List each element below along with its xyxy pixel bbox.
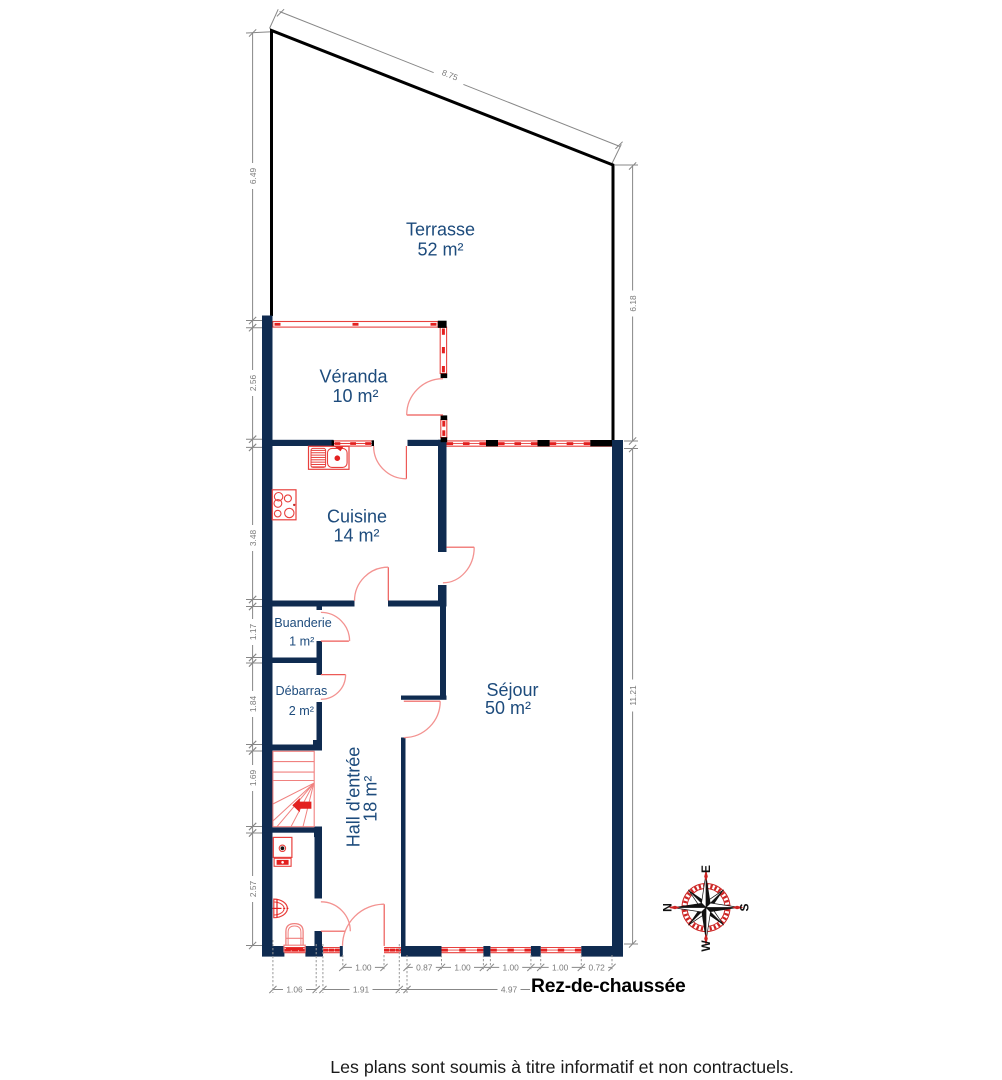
svg-text:1.00: 1.00 xyxy=(454,963,471,973)
svg-text:2.56: 2.56 xyxy=(248,375,258,392)
svg-text:52 m²: 52 m² xyxy=(417,239,463,259)
svg-text:Terrasse: Terrasse xyxy=(406,219,475,239)
svg-text:1.00: 1.00 xyxy=(503,963,520,973)
svg-text:1.69: 1.69 xyxy=(248,770,258,787)
svg-text:Rez-de-chaussée: Rez-de-chaussée xyxy=(531,976,686,997)
svg-text:1.00: 1.00 xyxy=(355,963,372,973)
svg-text:18 m²: 18 m² xyxy=(361,776,381,822)
svg-text:Débarras: Débarras xyxy=(276,684,328,698)
svg-text:6.18: 6.18 xyxy=(628,295,638,312)
svg-text:1.00: 1.00 xyxy=(552,963,569,973)
svg-text:S: S xyxy=(738,903,752,911)
svg-text:Buanderie: Buanderie xyxy=(274,616,331,630)
svg-text:1.91: 1.91 xyxy=(353,985,370,995)
svg-text:11.21: 11.21 xyxy=(628,685,638,706)
svg-text:1.84: 1.84 xyxy=(248,696,258,713)
svg-text:W: W xyxy=(699,940,713,952)
svg-text:Séjour: Séjour xyxy=(486,680,538,700)
svg-text:1.06: 1.06 xyxy=(286,985,303,995)
svg-text:6.49: 6.49 xyxy=(248,168,258,185)
svg-text:4.97: 4.97 xyxy=(501,985,518,995)
svg-text:E: E xyxy=(699,865,713,873)
svg-text:2 m²: 2 m² xyxy=(289,704,314,718)
svg-text:3.48: 3.48 xyxy=(248,530,258,547)
svg-text:N: N xyxy=(661,903,675,912)
svg-text:50 m²: 50 m² xyxy=(485,698,531,718)
svg-text:0.72: 0.72 xyxy=(589,963,606,973)
svg-text:Cuisine: Cuisine xyxy=(327,506,387,526)
svg-text:1 m²: 1 m² xyxy=(289,635,314,649)
svg-text:Les plans sont soumis à titre: Les plans sont soumis à titre informatif… xyxy=(330,1057,794,1077)
svg-text:14 m²: 14 m² xyxy=(333,525,379,545)
svg-text:0.87: 0.87 xyxy=(416,963,433,973)
svg-text:1.17: 1.17 xyxy=(248,624,258,641)
svg-text:10 m²: 10 m² xyxy=(332,386,378,406)
svg-text:Véranda: Véranda xyxy=(319,367,388,387)
svg-text:2.57: 2.57 xyxy=(248,881,258,898)
